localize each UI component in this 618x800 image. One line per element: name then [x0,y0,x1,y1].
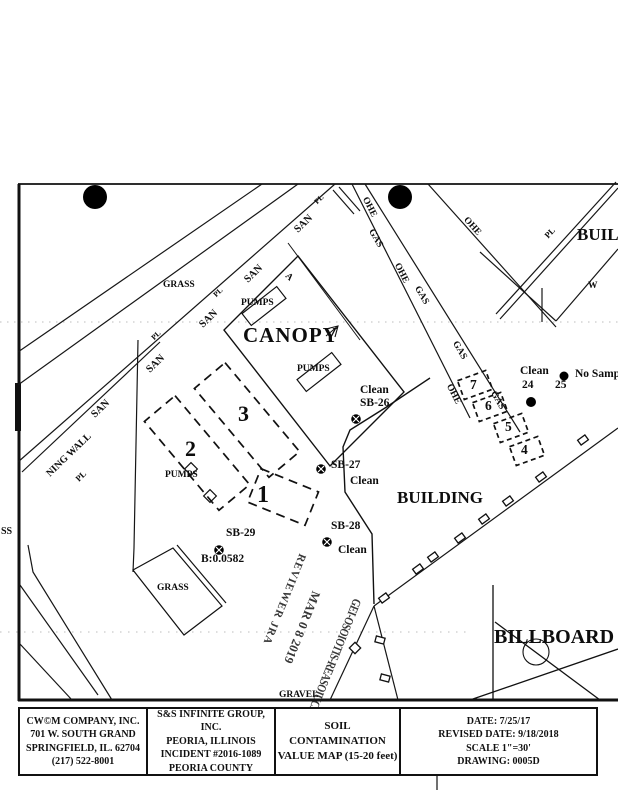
marker-sb28 [322,537,332,547]
revised-date: REVISED DATE: 9/18/2018 [438,728,558,742]
sb29-value-label: B:0.0582 [201,554,244,566]
box-4-number: 4 [521,443,528,457]
title-block-date-cell: DATE: 7/25/17 REVISED DATE: 9/18/2018 SC… [401,709,596,774]
grass-label-lower: GRASS [157,584,189,594]
upper-right-structures [480,182,618,322]
company-name: CW©M COMPANY, INC. [26,715,139,729]
company-address-1: 701 W. SOUTH GRAND [30,728,136,742]
sb28-clean-label: Clean [338,545,367,557]
canopy-outline [224,256,404,466]
pt24-clean-label: Clean [520,366,549,378]
sb29-label: SB-29 [226,528,255,540]
county: PEORIA COUNTY [169,762,253,776]
canopy-label: CANOPY [243,325,339,346]
box-6-number: 6 [485,399,492,413]
client-name: S&S INFINITE GROUP, INC. [148,708,274,735]
title-block-company-cell: CW©M COMPANY, INC. 701 W. SOUTH GRAND SP… [20,709,148,774]
building-label-upper: BUILDING [577,226,618,243]
title-block: CW©M COMPANY, INC. 701 W. SOUTH GRAND SP… [18,707,598,776]
sb27-label: SB-27 [331,460,360,472]
sample-markers [214,372,568,555]
pt25-label: 25 [555,380,567,392]
binder-hole-left [83,185,107,209]
company-phone: (217) 522-8001 [52,755,115,769]
scanned-site-map-page: GRASS SS NING WALL SAN SAN SAN SAN SAN P… [0,0,618,800]
company-address-2: SPRINGFIELD, IL. 62704 [26,742,140,756]
pumps-label: PUMPS [297,365,330,375]
title-block-project-cell: S&S INFINITE GROUP, INC. PEORIA, ILLINOI… [148,709,276,774]
drawing-scale: SCALE 1"=30' [466,742,531,756]
sb26-label: SB-26 [360,398,389,410]
drawing-number: DRAWING: 0005D [457,755,540,769]
grass-label-upper: GRASS [163,281,195,291]
box-5-number: 5 [505,420,512,434]
ss-label: SS [1,527,12,537]
site-map-linework [0,0,618,800]
marker-sb27 [316,464,326,474]
title-block-map-title-cell: SOIL CONTAMINATION VALUE MAP (15-20 feet… [276,709,401,774]
incident-number: INCIDENT #2016-1089 [161,748,262,762]
map-title-line-2: VALUE MAP (15-20 feet) [278,749,398,764]
sb27-clean-label: Clean [350,476,379,488]
w-marker-label: W [588,282,598,292]
ohe-line-2 [428,184,556,327]
billboard-label: BILLBOARD [494,627,614,647]
no-sample-label: No Samp [575,369,618,381]
box-1-number: 1 [257,483,269,507]
marker-sb26 [351,414,361,424]
drawing-date: DATE: 7/25/17 [467,715,530,729]
marker-24 [526,397,536,407]
binder-hole-right [388,185,412,209]
map-title-line-1: SOIL CONTAMINATION [276,719,399,749]
client-city: PEORIA, ILLINOIS [166,735,255,749]
sb28-label: SB-28 [331,521,360,533]
retaining-wall-line [22,342,160,472]
pumps-label: PUMPS [165,471,198,481]
box-7-number: 7 [470,378,477,392]
pt24-label: 24 [522,380,534,392]
pumps-label: PUMPS [241,299,274,309]
building-label-main: BUILDING [397,489,483,506]
sb26-clean-label: Clean [360,385,389,397]
box-3-number: 3 [238,403,249,425]
box-2-number: 2 [185,438,196,460]
box-2-outline [144,396,249,511]
